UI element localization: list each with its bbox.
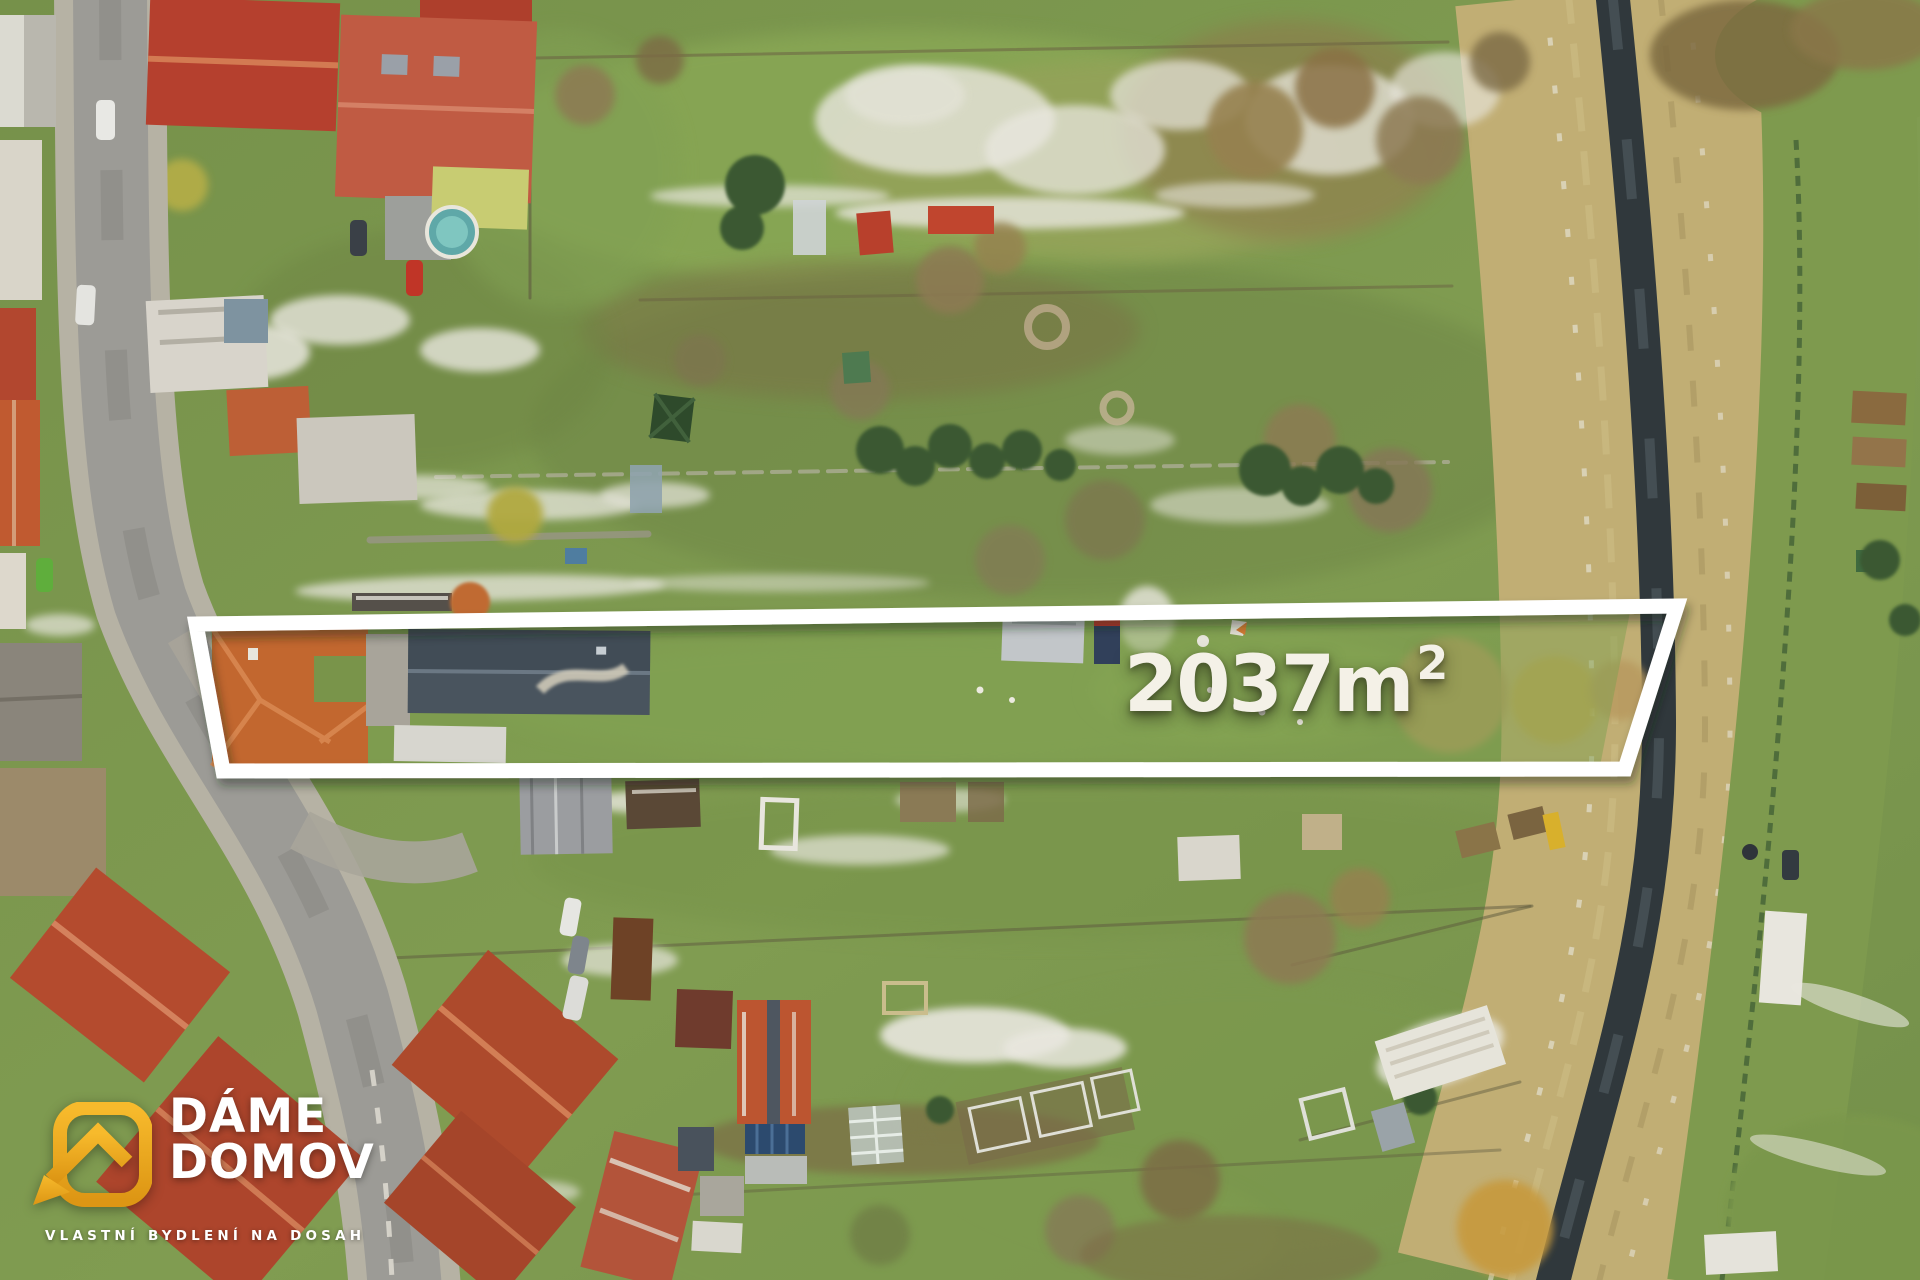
brand-tagline: VLASTNÍ BYDLENÍ NA DOSAH: [45, 1228, 375, 1244]
brand-row: DÁME DOMOV: [30, 1094, 375, 1212]
rounded-square-house-icon: [30, 1102, 152, 1212]
plot-area-exponent: 2: [1416, 636, 1448, 690]
plot-area-label: 2037m2: [1124, 640, 1448, 724]
aerial-photo: 2037m2 DÁME DOMOV VLASTNÍ BYDLENÍ NA DO: [0, 0, 1920, 1280]
plot-area-value: 2037m: [1124, 640, 1412, 730]
brand-name-line2: DOMOV: [169, 1140, 375, 1186]
brand-logo: DÁME DOMOV VLASTNÍ BYDLENÍ NA DOSAH: [30, 1094, 375, 1244]
brand-name-line1: DÁME: [169, 1094, 375, 1140]
photo-scene: [0, 0, 1920, 1280]
brand-name: DÁME DOMOV: [169, 1094, 375, 1186]
